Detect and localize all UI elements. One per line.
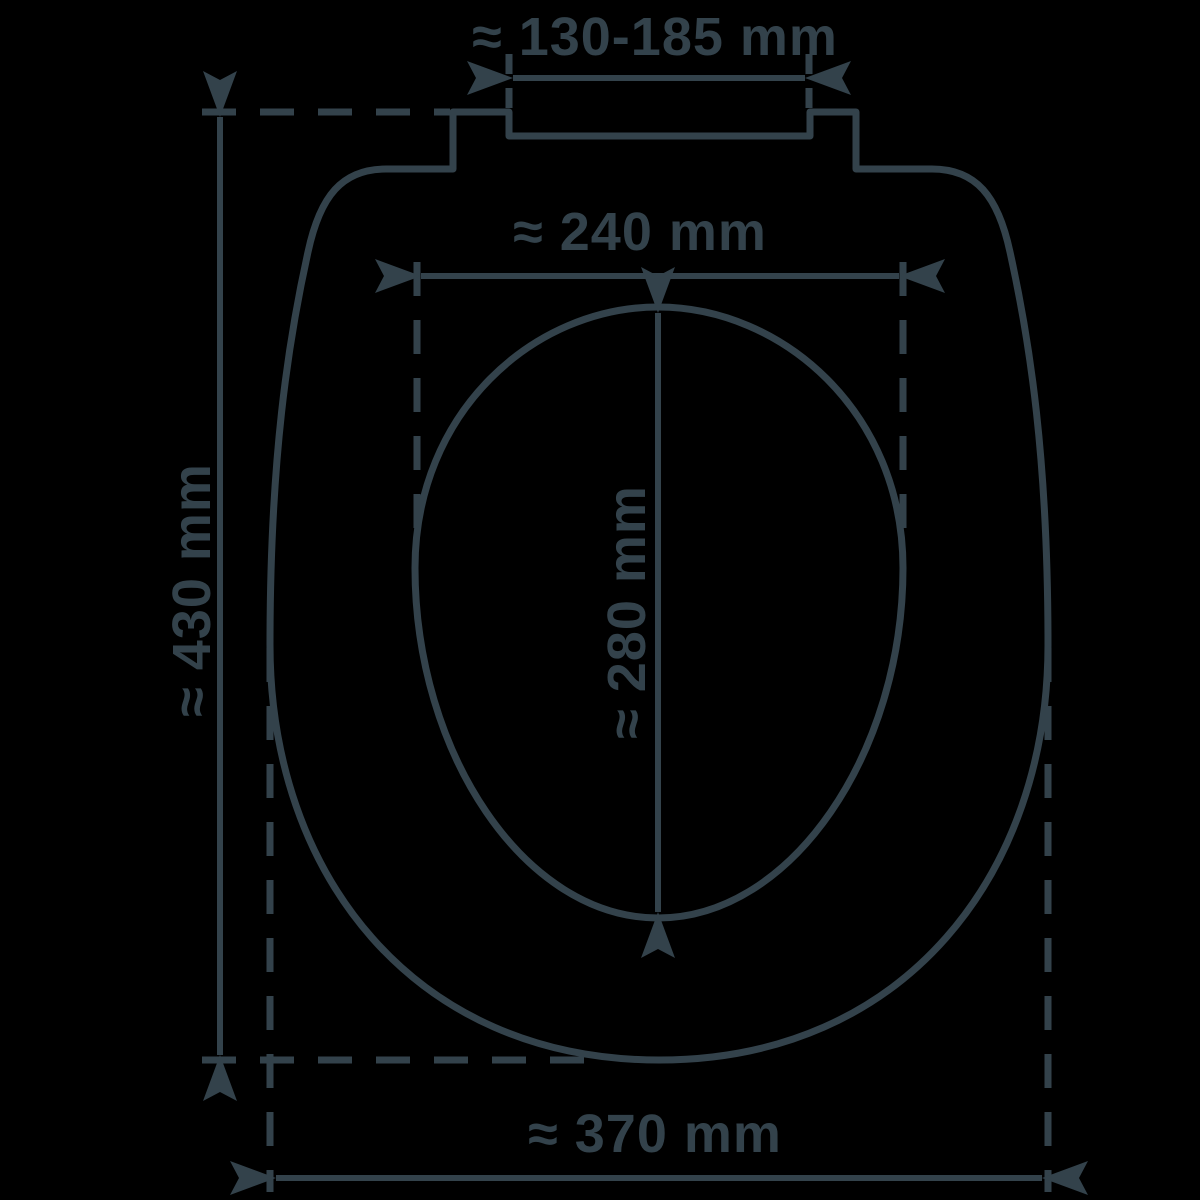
label-overall-length: ≈ 430 mm: [162, 463, 222, 717]
label-hinge-hole-spacing: ≈ 130-185 mm: [472, 7, 838, 67]
label-inner-opening-width: ≈ 240 mm: [513, 202, 767, 262]
toilet-seat-dimension-drawing: ≈ 130-185 mm ≈ 240 mm ≈ 280 mm ≈ 430 mm …: [0, 0, 1200, 1200]
diagram-canvas: ≈ 130-185 mm ≈ 240 mm ≈ 280 mm ≈ 430 mm …: [0, 0, 1200, 1200]
label-inner-opening-length: ≈ 280 mm: [597, 485, 657, 739]
label-overall-width: ≈ 370 mm: [528, 1104, 782, 1164]
